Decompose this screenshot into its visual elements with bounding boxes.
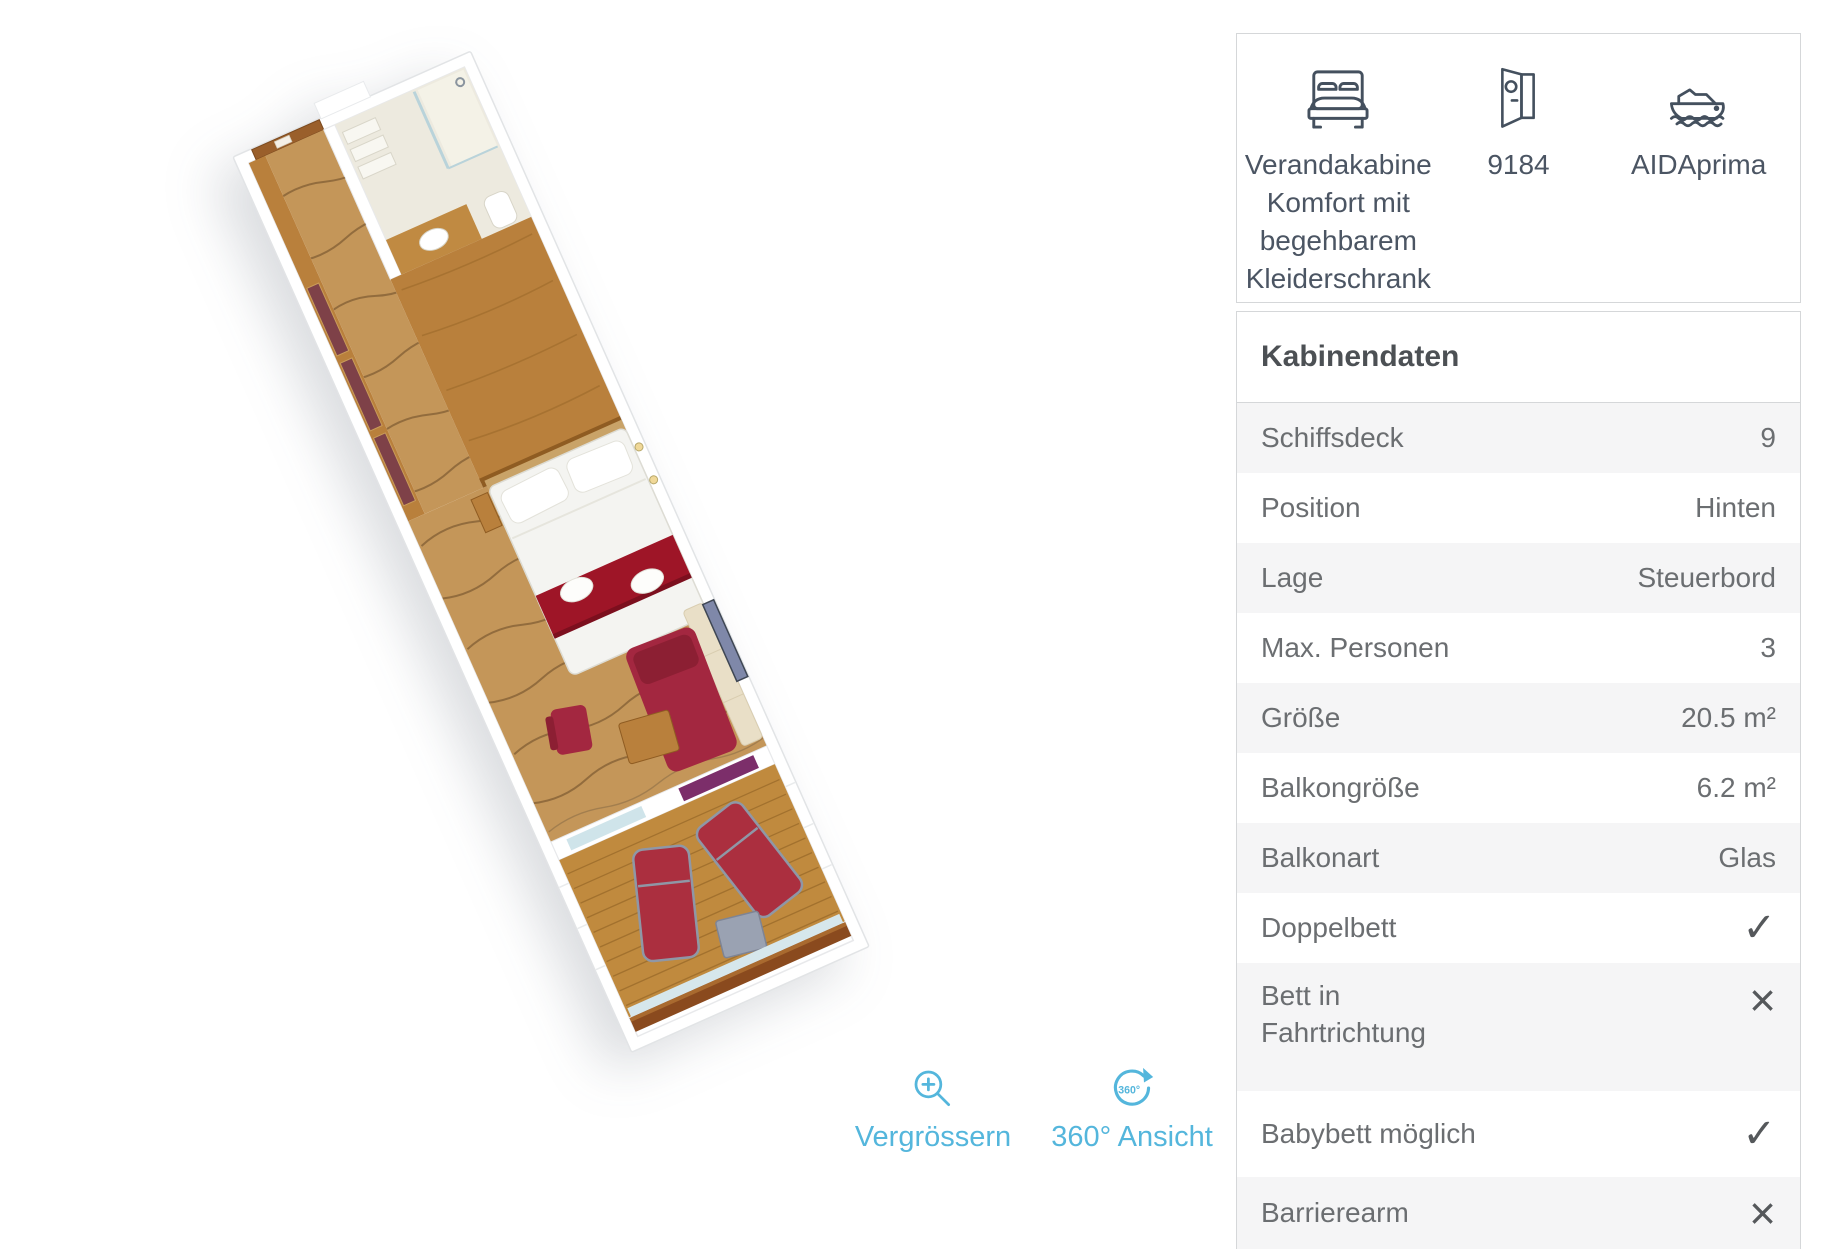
magnifier-plus-icon: [910, 1066, 956, 1112]
cabin-door-icon: [1494, 64, 1542, 130]
rotate-360-icon: 360°: [1107, 1066, 1157, 1112]
cabin-number-summary: 9184: [1440, 64, 1598, 302]
zoom-button-label: Vergrössern: [855, 1121, 1011, 1153]
table-row-lage: Lage Steuerbord: [1237, 543, 1800, 613]
ship-name-summary: AIDAprima: [1597, 64, 1800, 302]
table-row-doppelbett: Doppelbett ✓: [1237, 893, 1800, 963]
table-row-max-personen: Max. Personen 3: [1237, 613, 1800, 683]
check-icon: ✓: [1742, 1114, 1776, 1154]
table-row-balkongroesse: Balkongröße 6.2 m²: [1237, 753, 1800, 823]
cruise-ship-icon: [1664, 64, 1734, 130]
double-bed-icon: [1303, 64, 1373, 130]
table-row-balkonart: Balkonart Glas: [1237, 823, 1800, 893]
table-row-groesse: Größe 20.5 m²: [1237, 683, 1800, 753]
section-title: Kabinendaten: [1237, 312, 1800, 403]
viewer-controls: Vergrössern 360° 360° Ansicht: [844, 1066, 1222, 1153]
view-360-button[interactable]: 360° 360° Ansicht: [1042, 1066, 1222, 1153]
table-row-babybett: Babybett möglich ✓: [1237, 1091, 1800, 1177]
cabin-number-label: 9184: [1487, 146, 1549, 184]
deck-lounger: [632, 845, 699, 962]
badge-360-label: 360°: [1118, 1085, 1140, 1097]
cross-icon: ×: [1749, 1190, 1776, 1236]
cabin-category-summary: Verandakabine Komfort mit begehbarem Kle…: [1237, 64, 1440, 302]
zoom-button[interactable]: Vergrössern: [844, 1066, 1022, 1153]
table-row-barrierearm: Barrierearm ×: [1237, 1177, 1800, 1249]
view-360-button-label: 360° Ansicht: [1051, 1121, 1213, 1153]
cabin-3d-floorplan: [108, 28, 1098, 1078]
table-row-bett-in-fahrtrichtung: Bett in Fahrtrichtung ×: [1237, 963, 1800, 1091]
cabin-summary-card: Verandakabine Komfort mit begehbarem Kle…: [1236, 33, 1801, 303]
table-row-schiffsdeck: Schiffsdeck 9: [1237, 403, 1800, 473]
cabin-data-card: Kabinendaten Schiffsdeck 9 Position Hint…: [1236, 311, 1801, 1249]
cabin-category-label: Verandakabine Komfort mit begehbarem Kle…: [1238, 146, 1438, 298]
ship-name-label: AIDAprima: [1631, 146, 1766, 184]
cross-icon: ×: [1749, 977, 1776, 1023]
table-row-position: Position Hinten: [1237, 473, 1800, 543]
cabin-info-panel: Verandakabine Komfort mit begehbarem Kle…: [1236, 33, 1801, 1249]
check-icon: ✓: [1742, 908, 1776, 948]
cabin-data-table: Schiffsdeck 9 Position Hinten Lage Steue…: [1237, 403, 1800, 1249]
